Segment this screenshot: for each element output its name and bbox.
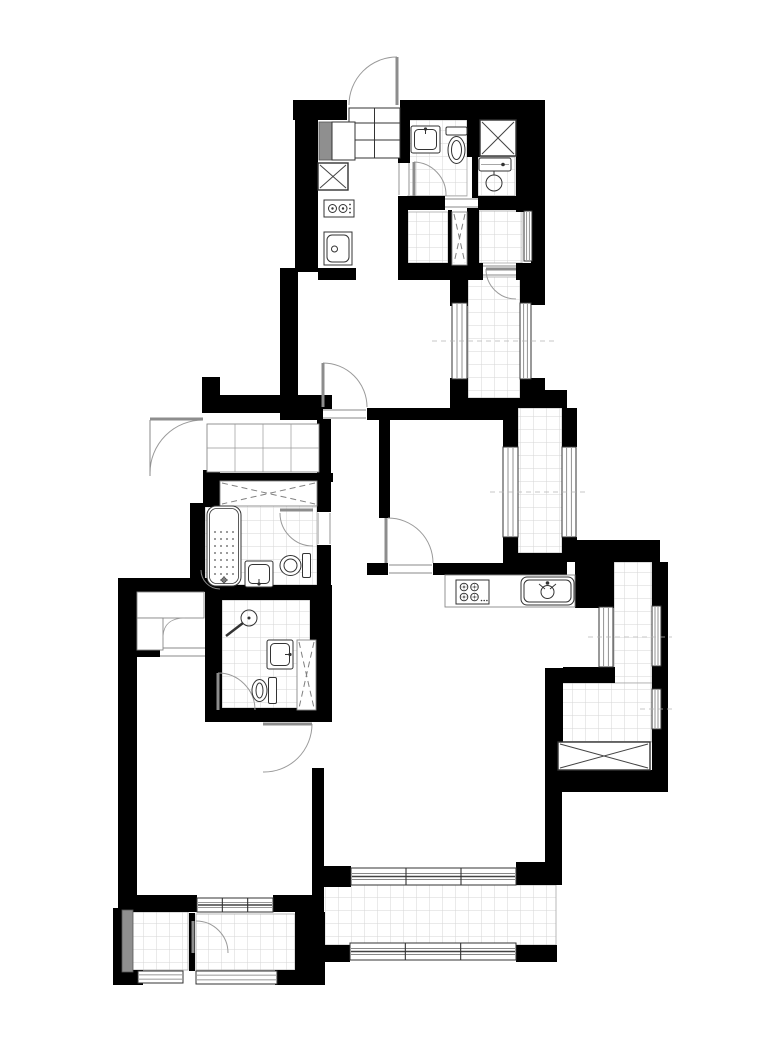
study-top-wall <box>220 395 332 413</box>
bath-top-mid-thin <box>472 157 478 200</box>
closet-opening <box>160 647 205 657</box>
living-bottom-left <box>318 866 351 887</box>
fridge-niche-shaft <box>319 122 332 160</box>
bedroom-bottom-left <box>118 895 197 912</box>
bath-top-opening <box>445 198 478 208</box>
bath-mid-door-gap <box>317 513 331 544</box>
balcony-bl-right-wall <box>295 912 325 985</box>
stove-four-burner <box>456 580 489 604</box>
living-bottom-right <box>516 862 562 885</box>
balcony-bl-window-br <box>196 971 277 984</box>
dining-door-gap <box>323 409 366 419</box>
bathroom-top-toilet <box>446 127 467 164</box>
kitchen-bottom-cap <box>318 268 356 280</box>
floor-plan-page <box>0 0 760 1054</box>
bedroom-center <box>390 420 503 563</box>
bathroom-mid-toilet <box>280 554 311 578</box>
bedroom-bottom-right <box>273 895 312 912</box>
wardrobe-left-pillar <box>203 470 220 507</box>
entry-shoe-cabinet <box>349 108 400 158</box>
storage-b-floor-grid <box>479 211 522 263</box>
study-pillar <box>202 377 220 413</box>
kitchen-sink-top <box>324 232 352 265</box>
balc-east-right-up <box>562 408 577 447</box>
right-outer-wall <box>652 562 668 792</box>
bathroom-top-sink <box>411 126 440 153</box>
balcony-top-floor-grid <box>468 277 520 398</box>
wardrobe-box <box>220 481 317 506</box>
left-outer-wall <box>118 578 137 912</box>
balcony-right-strip-floor-grid <box>614 562 652 683</box>
bed-center-door-gap <box>389 564 432 574</box>
storage-b-window <box>524 211 532 261</box>
ensuite-toilet <box>252 678 277 704</box>
balcony-right-mid-wall <box>563 667 615 683</box>
balc-top-left-dn <box>450 378 468 408</box>
bath-mid-left-wall <box>190 503 205 588</box>
balc-east-top-wall <box>520 390 567 408</box>
kitchen-left-wall <box>295 100 318 272</box>
bed-center-bottom-left <box>367 563 388 575</box>
balc-east-left-dn <box>503 537 518 555</box>
duct-right-wall <box>467 207 479 267</box>
study-cabinet <box>207 424 319 472</box>
storage-a-floor-grid <box>408 212 448 263</box>
hall-left-wall-dn <box>317 545 331 588</box>
bath-top-door-gap <box>398 163 410 195</box>
balcony-right-bottom-wall <box>545 770 668 792</box>
balcony-right-window-r1 <box>652 606 661 666</box>
band-263-right <box>516 263 545 280</box>
living-room <box>331 575 545 862</box>
balcony-east-floor-grid <box>518 408 562 553</box>
bath-ensuite-bottom-wall <box>208 708 297 722</box>
vestibule <box>152 420 203 478</box>
balcony-bl-right-floor-grid <box>196 914 295 970</box>
fridge-box <box>332 122 355 160</box>
bathtub <box>201 506 241 589</box>
balc-top-right-up <box>520 280 545 305</box>
dining-left-wall <box>280 268 298 408</box>
dining-room <box>298 280 450 408</box>
balc-top-bottom-cap <box>468 398 520 408</box>
balcony-bottom-floor-grid <box>323 885 556 945</box>
bathroom-mid-sink <box>245 561 273 587</box>
floor-plan-canvas <box>0 0 760 1054</box>
balcony-bl-corner-br <box>275 970 297 985</box>
balcony-right-left-block <box>575 553 614 608</box>
bed-center-top-wall <box>387 408 507 420</box>
stove-two-burner <box>324 200 354 217</box>
balcony-bottom-corner-l <box>323 945 350 962</box>
storage-b-outer <box>531 205 545 263</box>
below-bath-left <box>398 196 445 210</box>
band-263-left <box>398 263 483 280</box>
bath-top-mid-block <box>467 115 480 157</box>
balcony-bl-shaft <box>122 910 133 972</box>
kitchen-junction-block <box>503 553 567 575</box>
balcony-bottom-corner-r <box>516 945 557 962</box>
balc-east-left-up <box>503 408 518 447</box>
floor-plan-svg <box>0 0 760 1054</box>
balc-top-left-up <box>450 280 468 306</box>
ensuite-sink <box>267 640 293 669</box>
balcony-right-wide-floor-grid <box>562 683 652 742</box>
balcony-bl-left-floor-grid <box>132 912 188 970</box>
storage-duct-sep <box>448 210 452 267</box>
kitchen-sink-main <box>521 577 574 605</box>
bed-living-partition <box>312 768 324 912</box>
bed-center-left-wall <box>379 417 390 518</box>
balcony-bl-window-bl <box>138 971 183 983</box>
